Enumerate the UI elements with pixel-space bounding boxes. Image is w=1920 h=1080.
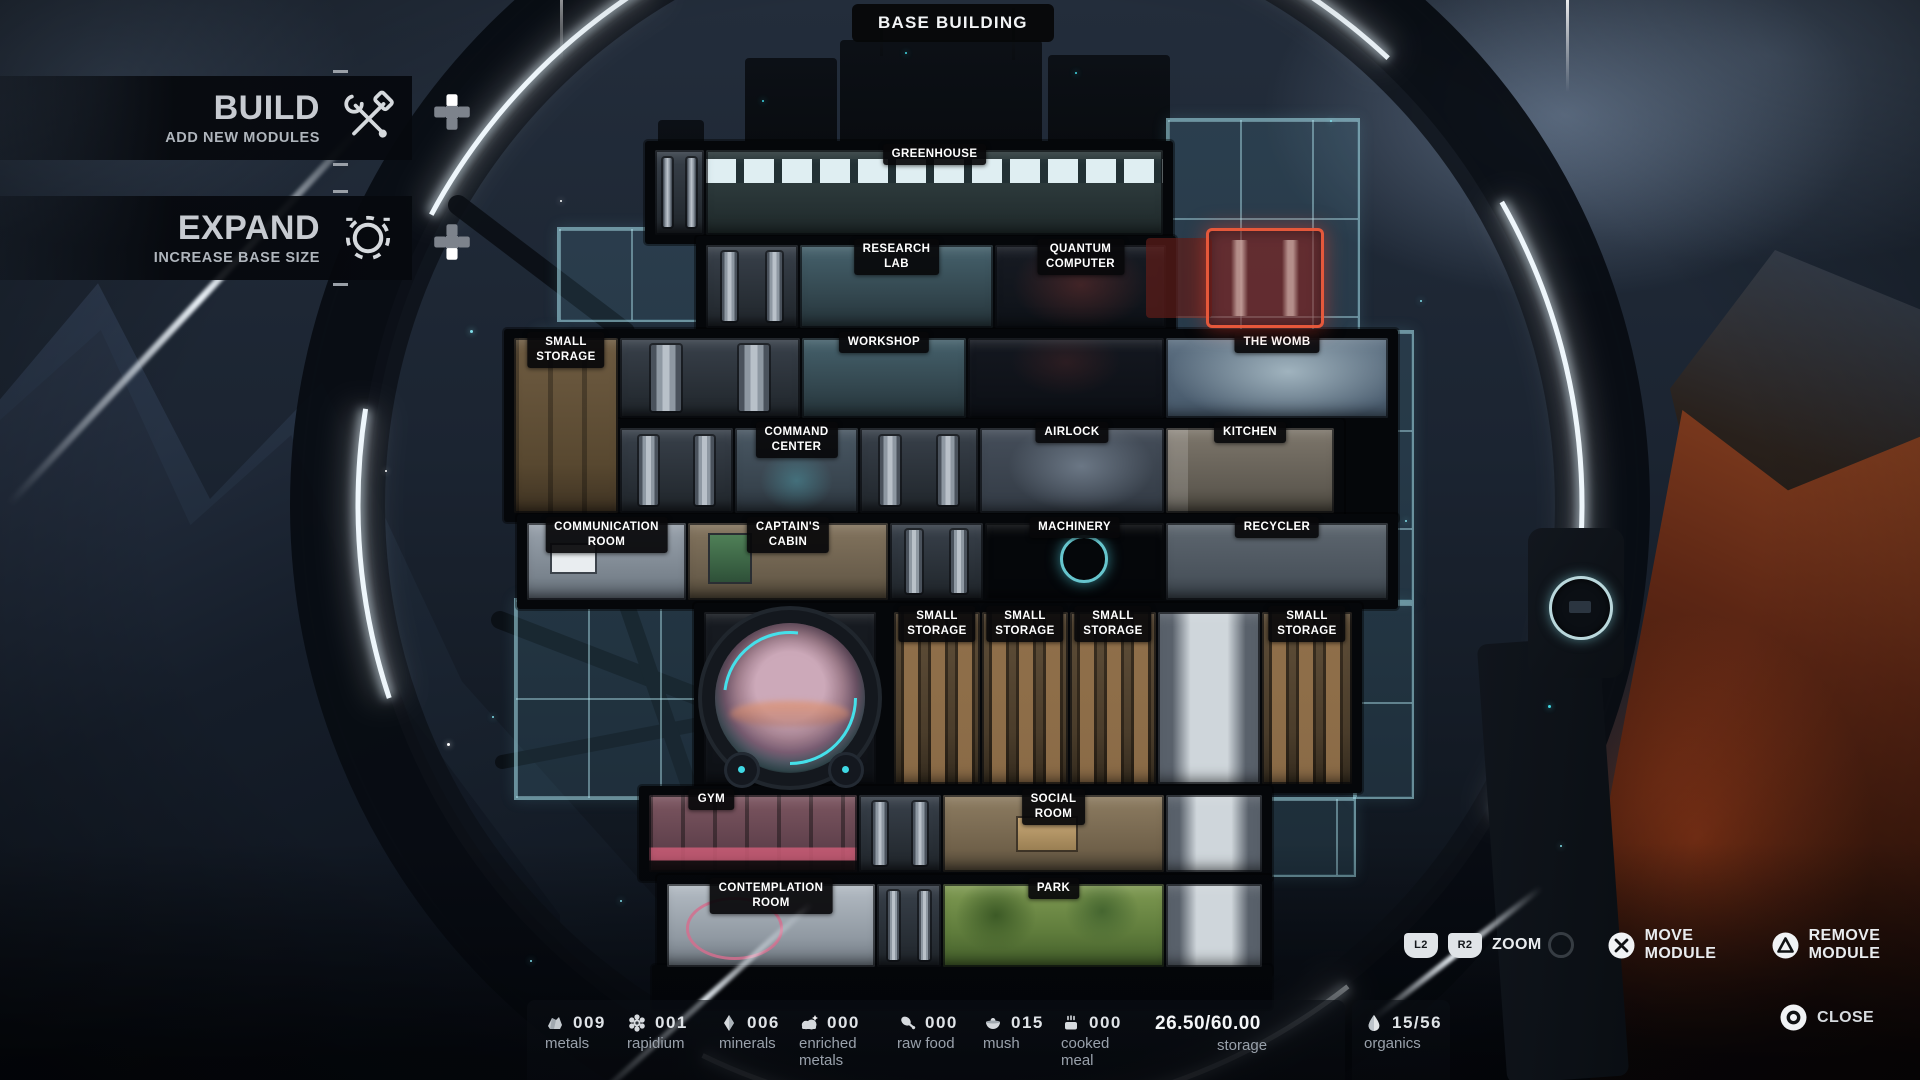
light-beam: [1566, 0, 1569, 92]
module-label: RESEARCH LAB: [854, 239, 940, 275]
dust-particle: [1405, 520, 1407, 522]
module-park[interactable]: PARK: [943, 884, 1164, 967]
dust-particle: [905, 52, 907, 54]
resource-label: mush: [983, 1036, 1061, 1053]
resource-value: 26.50/60.00: [1155, 1013, 1261, 1035]
module-gym[interactable]: GYM: [649, 795, 857, 872]
module-label: CONTEMPLATION ROOM: [710, 878, 833, 914]
resource-minerals: 006minerals: [719, 1013, 799, 1053]
mush-icon: [983, 1013, 1003, 1033]
dust-particle: [762, 100, 764, 102]
dust-particle: [560, 200, 562, 202]
module-captains-cabin[interactable]: CAPTAIN'S CABIN: [688, 523, 888, 600]
remove-module-hint[interactable]: REMOVE MODULE: [1772, 927, 1920, 963]
module-elevator: [1166, 884, 1262, 967]
module-the-womb[interactable]: THE WOMB: [1166, 338, 1388, 418]
rawfood-icon: [897, 1013, 917, 1033]
resource-organics: 15/56organics: [1364, 1013, 1450, 1053]
dust-particle: [1420, 300, 1422, 302]
resource-bar: 009metals001rapidium006minerals000enrich…: [527, 1000, 1345, 1080]
circle-button-icon: [1780, 1004, 1807, 1031]
page-title: BASE BUILDING: [852, 4, 1054, 42]
module-label: SMALL STORAGE: [986, 606, 1063, 642]
module-corridor: [706, 245, 798, 328]
dust-particle: [385, 470, 387, 472]
resource-label: storage: [1217, 1038, 1325, 1055]
module-machinery[interactable]: MACHINERY: [985, 523, 1164, 600]
module-greenhouse[interactable]: GREENHOUSE: [706, 150, 1163, 235]
dust-particle: [447, 743, 450, 746]
cross-button-icon: [1608, 932, 1635, 959]
module-small-storage-left[interactable]: SMALL STORAGE: [514, 338, 618, 513]
dust-particle: [470, 330, 473, 333]
module-small-storage-4[interactable]: SMALL STORAGE: [1262, 612, 1352, 784]
hub-porthole: [1549, 576, 1613, 640]
enriched-icon: [799, 1013, 819, 1033]
module-elevator: [1158, 612, 1260, 784]
module-label: GYM: [689, 789, 734, 810]
module-contemplation-room[interactable]: CONTEMPLATION ROOM: [667, 884, 875, 967]
module-label: COMMAND CENTER: [755, 422, 837, 458]
resource-label: enriched metals: [799, 1036, 897, 1070]
resource-label: metals: [545, 1036, 627, 1053]
module-label: MACHINERY: [1029, 517, 1120, 538]
base-building-screen: GREENHOUSERESEARCH LABQUANTUM COMPUTERSM…: [0, 0, 1920, 1080]
module-elevator: [1166, 795, 1262, 872]
module-command-center[interactable]: COMMAND CENTER: [735, 428, 858, 513]
resource-value: 000: [925, 1013, 958, 1033]
light-beam: [560, 0, 563, 60]
resource-storage: 26.50/60.00storage: [1155, 1013, 1325, 1055]
dust-particle: [492, 716, 494, 718]
dust-particle: [1548, 705, 1551, 708]
l2-trigger-icon: L2: [1404, 933, 1438, 958]
selected-module[interactable]: [1206, 228, 1324, 328]
module-label: SOCIAL ROOM: [1022, 789, 1086, 825]
module-airlock[interactable]: AIRLOCK: [980, 428, 1164, 513]
module-research-lab[interactable]: RESEARCH LAB: [800, 245, 993, 328]
resource-label: minerals: [719, 1036, 799, 1053]
control-hints-bar: L2R2ZOOMMOVE MODULEREMOVE MODULE: [1404, 927, 1920, 963]
dpad-up-icon: [432, 92, 472, 132]
meal-icon: [1061, 1013, 1081, 1033]
r2-trigger-icon: R2: [1448, 933, 1482, 958]
resource-value: 15/56: [1392, 1013, 1442, 1033]
resource-value: 000: [1089, 1013, 1122, 1033]
resource-label: rapidium: [627, 1036, 719, 1053]
module-quantum-computer[interactable]: QUANTUM COMPUTER: [995, 245, 1166, 328]
hint-label: MOVE MODULE: [1645, 927, 1738, 963]
expand-sublabel: INCREASE BASE SIZE: [154, 250, 320, 266]
module-label: SMALL STORAGE: [898, 606, 975, 642]
resource-mush: 015mush: [983, 1013, 1061, 1053]
module-label: SMALL STORAGE: [1074, 606, 1151, 642]
resource-rapidium: 001rapidium: [627, 1013, 719, 1053]
moving-module-trail: [1146, 238, 1212, 318]
resource-label: organics: [1364, 1036, 1450, 1053]
dust-particle: [530, 960, 532, 962]
module-label: AIRLOCK: [1035, 422, 1108, 443]
pod-detail: [828, 752, 864, 788]
triangle-button-icon: [1772, 932, 1799, 959]
ore-icon: [545, 1013, 565, 1033]
module-label: SMALL STORAGE: [1268, 606, 1345, 642]
close-button[interactable]: CLOSE: [1780, 1004, 1874, 1031]
observation-porthole: [715, 623, 865, 773]
resource-raw-food: 000raw food: [897, 1013, 983, 1053]
resource-value: 000: [827, 1013, 860, 1033]
organics-resource: 15/56organics: [1352, 1000, 1450, 1080]
droplet-icon: [1364, 1013, 1384, 1033]
build-button[interactable]: BUILD ADD NEW MODULES: [0, 76, 412, 160]
module-corridor: [859, 795, 941, 872]
module-corridor: [877, 884, 941, 967]
move-module-hint[interactable]: MOVE MODULE: [1608, 927, 1738, 963]
build-sublabel: ADD NEW MODULES: [165, 130, 320, 146]
resource-enriched-metals: 000enriched metals: [799, 1013, 897, 1070]
module-workshop[interactable]: WORKSHOP: [802, 338, 966, 418]
module-label: GREENHOUSE: [883, 144, 987, 165]
resource-cooked-meal: 000cooked meal: [1061, 1013, 1155, 1070]
module-label: CAPTAIN'S CABIN: [747, 517, 829, 553]
module-small-storage-1[interactable]: SMALL STORAGE: [894, 612, 980, 784]
resource-value: 015: [1011, 1013, 1044, 1033]
dust-particle: [620, 900, 622, 902]
zoom-hint[interactable]: L2R2ZOOM: [1404, 932, 1574, 958]
module-corridor: [860, 428, 978, 513]
hammer-wrench-icon: [340, 90, 396, 146]
dust-particle: [1075, 72, 1077, 74]
module-communication-room[interactable]: COMMUNICATION ROOM: [527, 523, 686, 600]
gear-dial-icon: [340, 210, 396, 266]
module-label: KITCHEN: [1214, 422, 1286, 443]
module-small-storage-3[interactable]: SMALL STORAGE: [1070, 612, 1156, 784]
rapidium-icon: [627, 1013, 647, 1033]
dust-particle: [1560, 845, 1562, 847]
close-label: CLOSE: [1817, 1009, 1874, 1027]
hint-label: ZOOM: [1492, 936, 1542, 954]
expand-button[interactable]: EXPAND INCREASE BASE SIZE: [0, 196, 412, 280]
resource-value: 009: [573, 1013, 606, 1033]
module-corridor: [620, 428, 733, 513]
module-kitchen[interactable]: KITCHEN: [1166, 428, 1334, 513]
resource-label: cooked meal: [1061, 1036, 1155, 1070]
resource-value: 001: [655, 1013, 688, 1033]
module-corridor: [655, 150, 704, 235]
module-recycler[interactable]: RECYCLER: [1166, 523, 1388, 600]
module-label: SMALL STORAGE: [527, 332, 604, 368]
module-small-storage-2[interactable]: SMALL STORAGE: [982, 612, 1068, 784]
module-label: COMMUNICATION ROOM: [545, 517, 668, 553]
module-corridor: [620, 338, 800, 418]
module-label: THE WOMB: [1234, 332, 1319, 353]
mineral-icon: [719, 1013, 739, 1033]
pod-detail: [724, 752, 760, 788]
resource-value: 006: [747, 1013, 780, 1033]
resource-metals: 009metals: [545, 1013, 627, 1053]
module-label: QUANTUM COMPUTER: [1037, 239, 1124, 275]
module-label: RECYCLER: [1235, 517, 1319, 538]
dpad-down-icon: [432, 222, 472, 262]
hint-label: REMOVE MODULE: [1809, 927, 1920, 963]
module-corridor: [890, 523, 983, 600]
stick-ghost-icon: [1548, 932, 1574, 958]
module-social-room[interactable]: SOCIAL ROOM: [943, 795, 1164, 872]
resource-label: raw food: [897, 1036, 983, 1053]
expand-label: EXPAND: [154, 211, 320, 245]
build-label: BUILD: [165, 91, 320, 125]
module-label: WORKSHOP: [839, 332, 929, 353]
module-label: PARK: [1028, 878, 1079, 899]
module-quantum-computer-lower: [968, 338, 1164, 418]
dust-particle: [1330, 120, 1332, 122]
